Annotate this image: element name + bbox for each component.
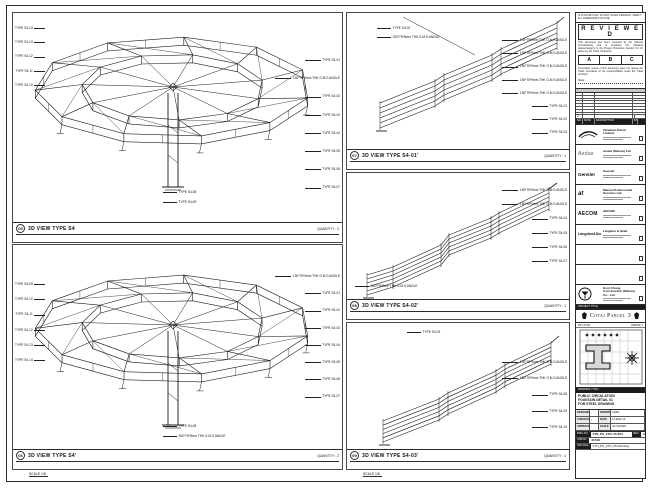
annotation-label: TYPE S4-01 (532, 105, 567, 108)
quantity-note: QUANTITY : 1 (544, 304, 566, 308)
leader-line (34, 360, 45, 361)
view-title: 3D VIEW TYPE S4-02' (362, 303, 419, 309)
leader-line (305, 397, 321, 398)
leader-line (502, 53, 518, 54)
annotation-label: TYPE S4-03 (305, 114, 340, 117)
annotation-label: 150*75*9mm THK G.M.S ANGLE (502, 79, 567, 82)
company-row-aecom: AECOM AECOM (576, 205, 645, 225)
approval-checkbox[interactable] (639, 296, 644, 301)
leader-line (305, 115, 321, 116)
annotation-label: TYPE S4-06 (305, 168, 340, 171)
annotation-column-left: TYPE S4-09TYPE S4-10TYPE S4-11TYPE S4-12… (15, 283, 45, 362)
disclaimer-strip: IF IN DOUBT ASK. DO NOT SCALE DRAWING. V… (576, 13, 645, 23)
keyplan-parcel-label: PARCEL 3 (631, 323, 643, 327)
annotation-label: 150*75*9mm THK G.M.S ANGLE (502, 361, 567, 364)
viewport-3d-view-s4: TYPE S4-14TYPE S4-13TYPE S4-12TYPE S4-11… (12, 12, 343, 243)
annotation-label: 150*75*9mm THK G.M.S ANGLE (502, 189, 567, 192)
annotation-label: 150*75*9mm THK G.M.S ANGLE (502, 52, 567, 55)
leader-line (532, 261, 548, 262)
aecom-logo: AECOM (578, 211, 598, 217)
company-name: Venetian Orient Limited (603, 129, 637, 136)
annotation-label: TYPE S4-07 (305, 186, 340, 189)
annotation-label: TYPE S4-07 (305, 395, 340, 398)
company-row-venetian: Venetian Orient Limited (576, 125, 645, 145)
leader-line (305, 311, 321, 312)
reviewed-stamp-title: R E V I E W E D (578, 24, 643, 40)
keyplan-label: KEY PLAN (578, 323, 590, 327)
viewport-3d-view-s4-01: TYPE S4-02150*75*9mm THK G.M.S ANGLE 150… (346, 12, 570, 170)
leader-line (377, 37, 391, 38)
annotation-label: 150*75*9mm THK G.M.S ANGLE (275, 77, 340, 80)
view-title-bar: 05 3D VIEW TYPE S4 QUANTITY : 2 SCALE 1/… (13, 222, 342, 242)
annotation-label: TYPE S4-12 (15, 55, 45, 58)
ornament-icon (582, 312, 587, 319)
annotation-column-right: 150*75*9mm THK G.M.S ANGLE150*75*9mm THK… (502, 361, 567, 429)
leader-line (502, 378, 518, 379)
view-title-bar: 06 3D VIEW TYPE S4' QUANTITY : 2 SCALE 1… (13, 449, 342, 469)
annotation-column-right: 150*75*9mm THK G.M.S ANGLE150*75*9mm THK… (502, 189, 567, 263)
leader-line (305, 133, 321, 134)
company-row-gensler: Gensler Gensler (576, 165, 645, 185)
leader-line (377, 28, 391, 29)
leader-line (34, 28, 45, 29)
annotation-column-bottomleft: 150*75*9mm THK G.M.S ANGLE (355, 285, 418, 288)
annotation-label: TYPE S4-06 (532, 246, 567, 249)
annotation-label: TYPE S4-09 (15, 283, 45, 286)
annotation-label: TYPE S4-04 (532, 217, 567, 220)
leader-line (163, 436, 177, 437)
leader-line (34, 85, 45, 86)
company-row-mps: at Macau Professional Services Ltd. (576, 185, 645, 205)
drawing-sheet-page: { "sheet": { "disclaimer": "IF IN DOUBT … (0, 0, 650, 488)
leader-line (532, 233, 548, 234)
leader-line (305, 169, 321, 170)
annotation-label: TYPE S4-08 (532, 393, 567, 396)
viewport-3d-view-s4-03: TYPE S4-03 150*75*9mm THK G.M.S ANGLE150… (346, 322, 570, 470)
annotation-label: 150*75*9mm THK G.M.S ANGLE (502, 39, 567, 42)
leader-line (305, 293, 321, 294)
annotation-label: TYPE S4-10 (532, 426, 567, 429)
annotation-label: TYPE S4-04 (305, 132, 340, 135)
leader-line (502, 40, 518, 41)
annotation-column-bottom: TYPE S4-08TYPE S4-09 (163, 191, 196, 204)
annotation-label: 150*75*9mm THK G.M.S ANGLE (275, 275, 340, 278)
company-row-empty (576, 245, 645, 265)
annotation-label: TYPE S4-03 (532, 131, 567, 134)
annotation-label: 150*75*9mm THK G.M.S ANGLE (502, 65, 567, 68)
leader-line (532, 106, 548, 107)
approval-checkbox[interactable] (639, 256, 644, 261)
leader-line (502, 362, 518, 363)
annotation-label: TYPE S4-03 (407, 331, 440, 334)
annotation-label: TYPE S4-08 (163, 425, 226, 428)
annotation-label: TYPE S4-10 (15, 298, 45, 301)
detail-number-bubble: 08 (350, 301, 359, 310)
approval-checkbox[interactable] (639, 216, 644, 221)
leader-line (532, 411, 548, 412)
approval-checkbox[interactable] (639, 276, 644, 281)
annotation-label: TYPE S4-11 (15, 313, 45, 316)
view-title: 3D VIEW TYPE S4 (28, 226, 75, 232)
annotation-column-top: TYPE S4-03 (407, 331, 440, 334)
leader-line (34, 330, 45, 331)
annotation-label: TYPE S4-03 (305, 327, 340, 330)
company-row-langdon: Langdon&Seah Langdon & Seah (576, 225, 645, 245)
leader-line (34, 57, 45, 58)
annotation-label: 150*75*9mm THK G.M.S ANGLE (502, 377, 567, 380)
leader-line (275, 78, 291, 79)
detail-number-bubble: 07 (350, 151, 359, 160)
annotation-label: TYPE S4-06 (305, 378, 340, 381)
approval-checkbox[interactable] (639, 236, 644, 241)
leader-line (34, 315, 45, 316)
annotation-label: TYPE S4-02 (377, 27, 440, 30)
project-name: Cotai Parcel 3 (590, 313, 631, 319)
annotation-label: TYPE S4-02 (305, 95, 340, 98)
quantity-note: QUANTITY : 2 (317, 454, 339, 458)
review-grade-row: A B C (578, 55, 643, 65)
annotation-column-right: TYPE S4-01150*75*9mm THK G.M.S ANGLETYPE… (275, 59, 340, 190)
leader-line (163, 192, 177, 193)
grade-b-cell[interactable]: B (600, 56, 621, 64)
leader-line (502, 204, 518, 205)
title-block: IF IN DOUBT ASK. DO NOT SCALE DRAWING. V… (575, 12, 646, 479)
leader-line (532, 247, 548, 248)
leader-line (163, 426, 177, 427)
company-name: AECOM (603, 210, 637, 214)
annotation-label: 150*75*9mm THK G.M.S ANGLE (502, 203, 567, 206)
company-row-empty (576, 265, 645, 285)
leader-line (163, 202, 177, 203)
annotation-label: TYPE S4-02 (305, 309, 340, 312)
leader-line (305, 97, 321, 98)
leader-line (275, 276, 291, 277)
annotation-column-right: 150*75*9mm THK G.M.S ANGLETYPE S4-01TYPE… (275, 275, 340, 399)
leader-line (34, 345, 45, 346)
annotation-label: TYPE S4-10 (15, 84, 45, 87)
leader-line (502, 190, 518, 191)
company-row-hsinchong: Hsin Chong Construction (Macau) Co., Ltd… (576, 285, 645, 305)
annotation-column-left: TYPE S4-14TYPE S4-13TYPE S4-12TYPE S4-11… (15, 27, 45, 87)
view-title: 3D VIEW TYPE S4' (28, 453, 77, 459)
key-plan-map (579, 329, 643, 385)
drawing-title: PUBLIC CIRCULATION FOUNTAIN DETAIL 01 FO… (576, 393, 645, 410)
leader-line (532, 119, 548, 120)
hsin-chong-logo (578, 287, 601, 301)
viewport-3d-view-s4-prime: TYPE S4-09TYPE S4-10TYPE S4-11TYPE S4-12… (12, 244, 343, 470)
annotation-label: TYPE S4-12 (15, 329, 45, 332)
leader-line (502, 80, 518, 81)
company-row-aedas: Aedas Aedas (Macau) Ltd. (576, 145, 645, 165)
annotation-column-topleft: TYPE S4-02150*75*9mm THK G.M.S ANGLE (377, 27, 440, 39)
ornament-icon (634, 312, 639, 319)
annotation-column-bottom: TYPE S4-08150*75*9mm THK G.M.S ANGLE (163, 425, 226, 438)
stamp-date-line: Date : (578, 78, 643, 84)
quantity-note: QUANTITY : 1 (544, 154, 566, 158)
mps-logo: at (578, 191, 583, 197)
venetian-swoosh-logo (578, 129, 601, 139)
leader-line (305, 379, 321, 380)
view-title-bar: 09 3D VIEW TYPE S4-03' QUANTITY : 1 SCAL… (347, 449, 569, 469)
approval-checkbox[interactable] (639, 136, 644, 141)
view-scale: SCALE 1/8 (29, 471, 48, 477)
leader-line (34, 42, 45, 43)
signoff-table: DESIGNED- DRAWNCHAD CHECKED- DATE14-MAR-… (576, 410, 645, 432)
annotation-label: TYPE S4-07 (532, 260, 567, 263)
reviewed-stamp-text: Consultant review of this document does … (578, 67, 643, 76)
view-title-bar: 07 3D VIEW TYPE S4-01' QUANTITY : 1 SCAL… (347, 149, 569, 169)
view-title: 3D VIEW TYPE S4-01' (362, 153, 419, 159)
reviewed-stamp-text: This document has been reviewed by the r… (578, 41, 643, 54)
annotation-label: TYPE S4-02 (532, 118, 567, 121)
leader-line (305, 151, 321, 152)
leader-line (305, 188, 321, 189)
company-name: Hsin Chong Construction (Macau) Co., Ltd… (603, 287, 637, 298)
leader-line (532, 427, 548, 428)
company-name: Macau Professional Services Ltd. (603, 189, 637, 196)
detail-number-bubble: 09 (350, 451, 359, 460)
leader-line (407, 332, 421, 333)
leader-line (532, 395, 548, 396)
leader-line (355, 286, 369, 287)
annotation-label: TYPE S4-05 (305, 361, 340, 364)
leader-line (34, 299, 45, 300)
company-name: Langdon & Seah (603, 230, 637, 234)
project-banner: Cotai Parcel 3 (576, 310, 645, 323)
annotation-column-right: 150*75*9mm THK G.M.S ANGLE150*75*9mm THK… (502, 39, 567, 135)
annotation-label: TYPE S4-13 (15, 41, 45, 44)
annotation-label: TYPE S4-01 (305, 292, 340, 295)
leader-line (532, 219, 548, 220)
leader-line (305, 328, 321, 329)
detail-number-bubble: 06 (16, 451, 25, 460)
sheet-border: TYPE S4-14TYPE S4-13TYPE S4-12TYPE S4-11… (6, 5, 643, 482)
grade-a-cell[interactable]: A (579, 56, 600, 64)
grade-c-cell[interactable]: C (622, 56, 642, 64)
key-plan (576, 328, 645, 388)
leader-line (34, 284, 45, 285)
annotation-label: TYPE S4-05 (305, 150, 340, 153)
annotation-label: TYPE S4-09 (163, 201, 196, 204)
approval-checkbox[interactable] (639, 196, 644, 201)
aedas-logo: Aedas (578, 151, 594, 157)
leader-line (305, 362, 321, 363)
leader-line (305, 60, 321, 61)
revision-table: A NO. DATE DESCRIPTION BY (576, 93, 645, 125)
view-title: 3D VIEW TYPE S4-03' (362, 453, 419, 459)
annotation-label: TYPE S4-14 (15, 359, 45, 362)
leader-line (532, 133, 548, 134)
leader-line (34, 71, 45, 72)
company-name: Aedas (Macau) Ltd. (603, 150, 637, 154)
company-name: Gensler (603, 170, 637, 174)
leader-line (502, 93, 518, 94)
leader-line (305, 345, 321, 346)
leader-line (502, 67, 518, 68)
langdon-seah-logo: Langdon&Seah (578, 232, 601, 236)
annotation-label: TYPE S4-09 (532, 410, 567, 413)
annotation-label: TYPE S4-01 (305, 59, 340, 62)
view-title-bar: 08 3D VIEW TYPE S4-02' QUANTITY : 1 SCAL… (347, 299, 569, 319)
detail-number-bubble: 05 (16, 224, 25, 233)
annotation-label: TYPE S4-05 (532, 232, 567, 235)
annotation-label: 150*75*9mm THK G.M.S ANGLE (502, 92, 567, 95)
view-scale: SCALE 1/8 (363, 471, 382, 477)
reviewed-stamp: R E V I E W E D This document has been r… (576, 23, 645, 89)
annotation-label: TYPE S4-11 (15, 70, 45, 73)
quantity-note: QUANTITY : 1 (544, 454, 566, 458)
annotation-label: TYPE S4-13 (15, 344, 45, 347)
annotation-label: 150*75*9mm THK G.M.S ANGLE (355, 285, 418, 288)
cad-file-row: CAD FILE : FTN_PS_FTD_05-004.dwg (576, 444, 645, 450)
annotation-label: TYPE S4-04 (305, 344, 340, 347)
gensler-logo: Gensler (578, 172, 595, 177)
annotation-label: TYPE S4-14 (15, 27, 45, 30)
approval-checkbox[interactable] (639, 176, 644, 181)
annotation-label: 150*75*9mm THK G.M.S ANGLE (163, 435, 226, 438)
approval-checkbox[interactable] (639, 156, 644, 161)
revision-table-header: NO. DATE DESCRIPTION BY (576, 119, 645, 124)
annotation-label: 150*75*9mm THK G.M.S ANGLE (377, 36, 440, 39)
viewport-3d-view-s4-02: 150*75*9mm THK G.M.S ANGLE150*75*9mm THK… (346, 172, 570, 320)
annotation-label: TYPE S4-08 (163, 191, 196, 194)
quantity-note: QUANTITY : 2 (317, 227, 339, 231)
